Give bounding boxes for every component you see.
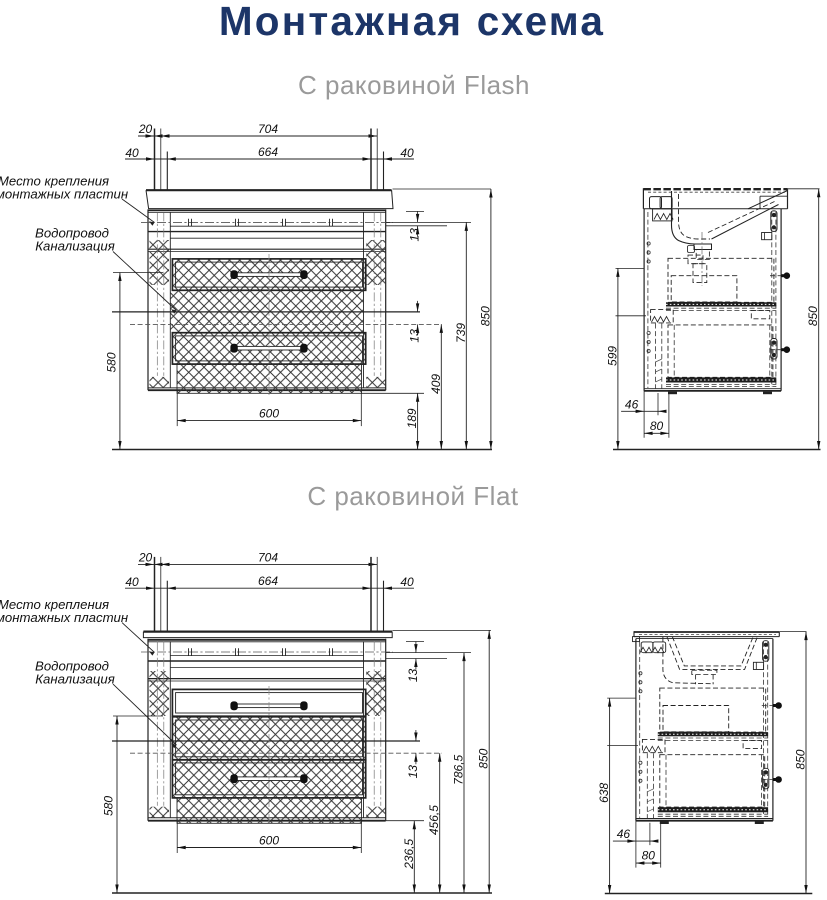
svg-text:739: 739 bbox=[454, 323, 468, 343]
svg-text:850: 850 bbox=[478, 306, 492, 326]
svg-text:46: 46 bbox=[625, 397, 639, 411]
svg-text:40: 40 bbox=[400, 575, 414, 589]
svg-text:850: 850 bbox=[794, 749, 808, 769]
svg-text:монтажных пластин: монтажных пластин bbox=[0, 186, 128, 201]
svg-text:786,5: 786,5 bbox=[452, 754, 466, 784]
svg-text:80: 80 bbox=[642, 849, 656, 863]
svg-text:456,5: 456,5 bbox=[427, 805, 441, 835]
svg-text:13: 13 bbox=[406, 669, 420, 683]
svg-text:599: 599 bbox=[605, 346, 619, 366]
svg-text:664: 664 bbox=[258, 145, 278, 159]
svg-text:704: 704 bbox=[258, 122, 278, 136]
svg-text:409: 409 bbox=[429, 374, 443, 394]
svg-text:Канализация: Канализация bbox=[35, 239, 115, 254]
svg-text:40: 40 bbox=[125, 146, 139, 160]
svg-text:638: 638 bbox=[597, 782, 611, 802]
svg-text:704: 704 bbox=[258, 550, 278, 564]
svg-text:13: 13 bbox=[408, 329, 422, 343]
svg-text:80: 80 bbox=[650, 419, 664, 433]
svg-text:20: 20 bbox=[138, 122, 153, 136]
svg-text:850: 850 bbox=[806, 306, 820, 326]
svg-text:46: 46 bbox=[617, 827, 631, 841]
svg-text:Канализация: Канализация bbox=[35, 671, 115, 686]
svg-text:580: 580 bbox=[102, 796, 116, 816]
svg-text:20: 20 bbox=[138, 550, 153, 564]
svg-text:Монтажная схема: Монтажная схема bbox=[219, 0, 605, 44]
svg-text:236,5: 236,5 bbox=[402, 839, 416, 870]
svg-text:С раковиной Flash: С раковиной Flash bbox=[298, 70, 530, 100]
svg-text:13: 13 bbox=[408, 228, 422, 242]
svg-text:С раковиной Flat: С раковиной Flat bbox=[307, 481, 519, 511]
svg-text:580: 580 bbox=[104, 352, 118, 372]
svg-text:850: 850 bbox=[477, 748, 491, 768]
svg-text:монтажных пластин: монтажных пластин bbox=[0, 610, 128, 625]
svg-text:40: 40 bbox=[400, 146, 414, 160]
svg-text:664: 664 bbox=[258, 574, 278, 588]
svg-text:600: 600 bbox=[259, 407, 279, 421]
svg-text:189: 189 bbox=[405, 408, 419, 428]
svg-text:600: 600 bbox=[259, 834, 279, 848]
svg-text:13: 13 bbox=[406, 765, 420, 779]
svg-text:40: 40 bbox=[125, 575, 139, 589]
